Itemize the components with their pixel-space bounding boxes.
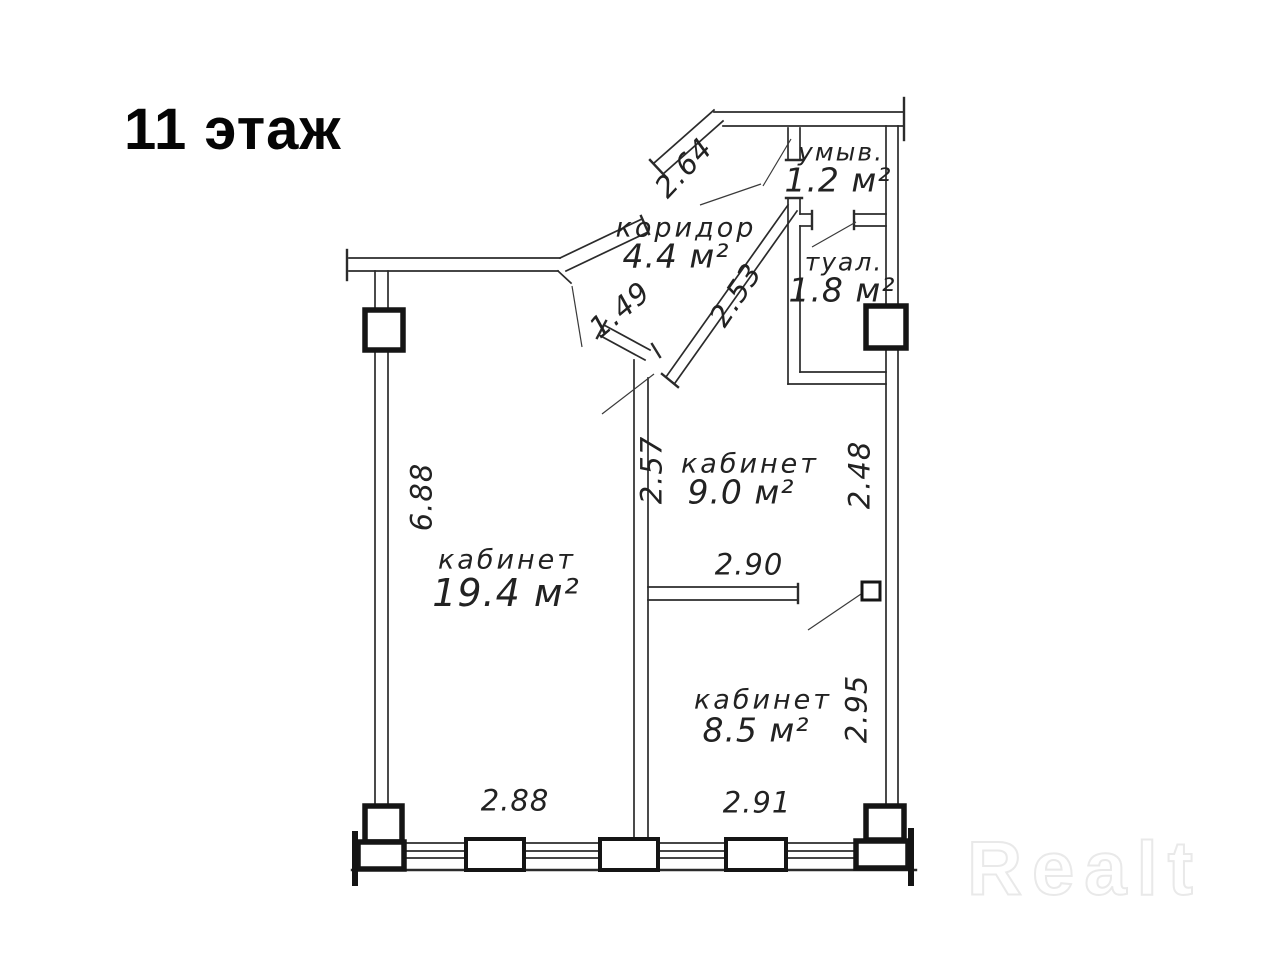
room-area-kabinet8: 8.5 м² [702,714,809,747]
room-area-umyv: 1.2 м² [784,164,891,197]
page-title: 11 этаж [124,96,341,163]
room-label-kabinet8: кабинет [694,687,832,714]
room-area-koridor: 4.4 м² [622,240,729,273]
dimension-6-88: 6.88 [408,463,437,532]
dimension-2-91: 2.91 [723,789,792,818]
dimension-2-48: 2.48 [846,441,875,510]
room-area-kabinet9: 9.0 м² [687,476,794,509]
room-area-kabinet19: 19.4 м² [432,574,580,612]
dimension-2-57: 2.57 [638,436,667,505]
dimension-2-90: 2.90 [715,551,784,580]
floor-plan-page: 11 этаж коридор 4.4 м² умыв. 1.2 м² туал… [0,0,1280,960]
realt-watermark: Realt [967,826,1203,913]
room-label-kabinet19: кабинет [438,547,576,574]
dimension-2-88: 2.88 [481,787,550,816]
dimension-2-95: 2.95 [843,675,872,744]
room-area-tual: 1.8 м² [788,274,895,307]
